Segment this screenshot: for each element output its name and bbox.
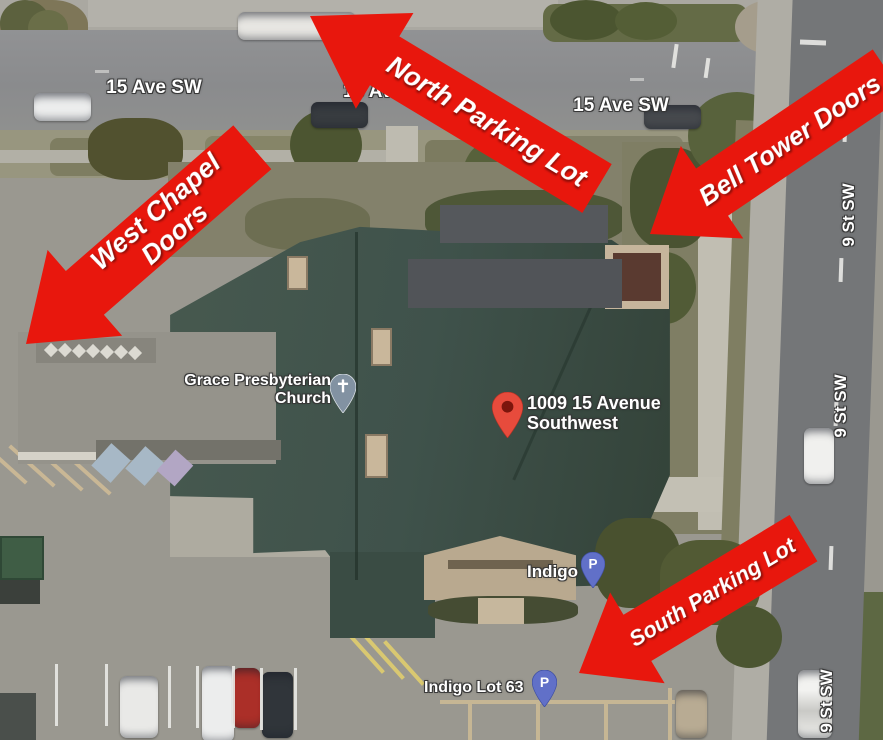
red-map-pin-icon[interactable] xyxy=(492,392,523,438)
street-label-15ave: 15 Ave SW xyxy=(573,95,669,117)
poi-label-church-line1: Grace Presbyterian xyxy=(184,372,331,390)
lane-dash xyxy=(839,258,844,282)
lane-dash xyxy=(630,78,644,81)
poi-label-address[interactable]: 1009 15 Avenue Southwest xyxy=(527,394,661,434)
tree xyxy=(550,0,622,40)
stall-line xyxy=(55,664,58,726)
car xyxy=(233,668,260,728)
parking-pin-letter: P xyxy=(540,674,549,690)
street-label-9st: 9 St SW xyxy=(831,374,851,437)
dumpster xyxy=(0,536,44,580)
poi-label-church-line2: Church xyxy=(184,390,331,408)
stall-line xyxy=(232,666,235,728)
parking-stripe xyxy=(604,704,608,740)
stall-line xyxy=(168,666,171,728)
parking-pin-icon[interactable]: P xyxy=(581,552,605,588)
street-label-9st: 9 St SW xyxy=(817,669,837,732)
poi-label-address-line1: 1009 15 Avenue xyxy=(527,394,661,414)
car xyxy=(34,93,91,121)
poi-label-indigo[interactable]: Indigo xyxy=(527,562,578,582)
church-pin-icon[interactable] xyxy=(330,374,356,413)
church-roof-wing xyxy=(330,552,435,638)
parking-stripe xyxy=(668,688,672,740)
car xyxy=(311,102,368,128)
dumpster xyxy=(0,580,40,604)
parking-stripe xyxy=(536,702,540,740)
car xyxy=(804,428,834,484)
car xyxy=(262,672,293,738)
parking-pin-letter: P xyxy=(588,557,597,572)
satellite-map: 15 Ave SW 15 Ave SW 15 Ave SW 9 St SW 9 … xyxy=(0,0,883,740)
poi-label-church[interactable]: Grace Presbyterian Church xyxy=(184,372,331,407)
parking-stripe xyxy=(440,700,675,704)
stall-line xyxy=(105,664,108,726)
car xyxy=(676,690,707,738)
street-label-9st: 9 St SW xyxy=(839,183,859,246)
stop-line xyxy=(800,40,826,46)
tree xyxy=(615,2,677,40)
redaction-box xyxy=(408,259,622,308)
poi-label-indigo-lot63[interactable]: Indigo Lot 63 xyxy=(424,679,524,697)
chimney xyxy=(365,434,388,478)
street-label-15ave: 15 Ave SW xyxy=(106,77,202,99)
poi-label-address-line2: Southwest xyxy=(527,414,661,434)
stall-line xyxy=(294,668,297,730)
porch-steps xyxy=(478,598,524,624)
car xyxy=(202,666,234,740)
dumpster xyxy=(0,693,36,740)
chimney xyxy=(371,328,392,366)
parking-stripe xyxy=(468,702,472,740)
stall-line xyxy=(260,668,263,730)
car xyxy=(120,676,158,738)
chimney xyxy=(287,256,308,290)
lane-dash xyxy=(95,70,109,73)
stall-line xyxy=(196,666,199,728)
lane-dash xyxy=(829,546,834,570)
parking-pin-icon[interactable]: P xyxy=(532,670,557,707)
